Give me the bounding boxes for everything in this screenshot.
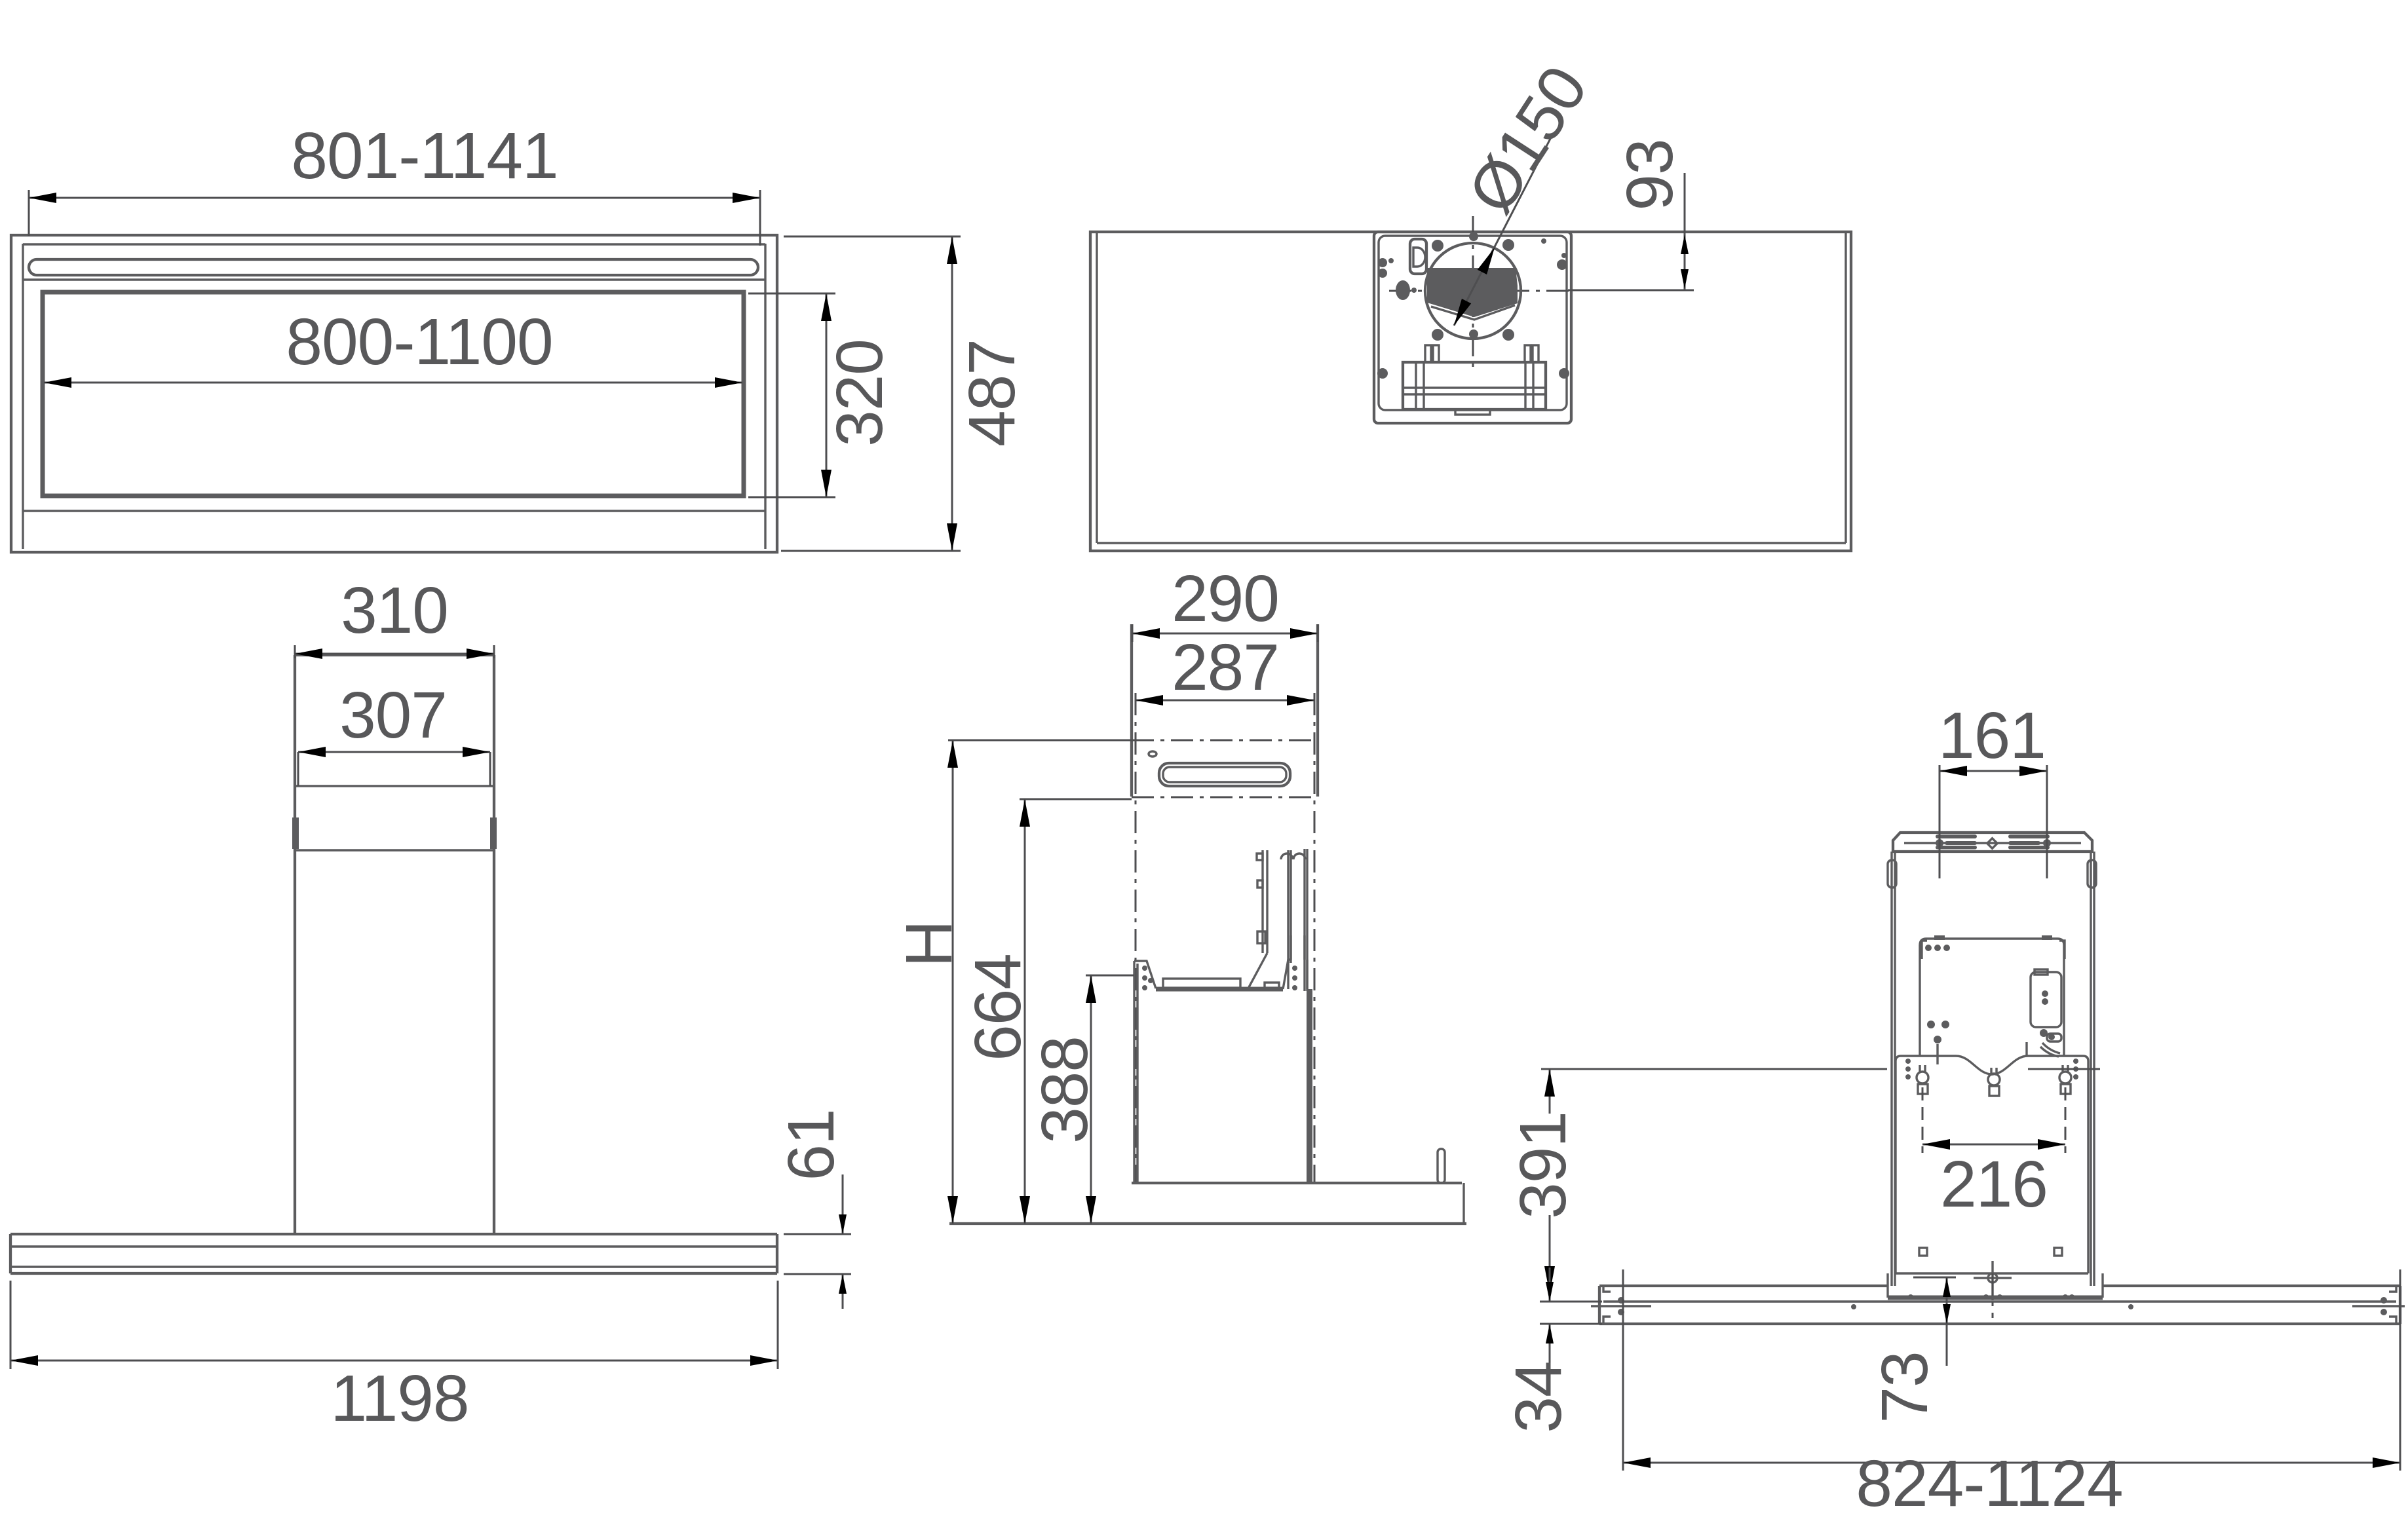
svg-text:800-1100: 800-1100 [286, 305, 552, 379]
svg-text:34: 34 [1502, 1361, 1575, 1433]
svg-text:1198: 1198 [330, 1362, 468, 1435]
svg-text:320: 320 [823, 339, 896, 447]
svg-text:290: 290 [1172, 562, 1279, 635]
svg-text:391: 391 [1506, 1112, 1580, 1219]
svg-text:307: 307 [339, 679, 447, 752]
svg-text:73: 73 [1868, 1351, 1941, 1423]
svg-text:287: 287 [1172, 631, 1279, 704]
svg-text:161: 161 [1938, 699, 2046, 772]
svg-text:93: 93 [1613, 139, 1687, 210]
svg-text:310: 310 [341, 574, 448, 647]
svg-text:664: 664 [961, 954, 1035, 1061]
svg-text:487: 487 [955, 339, 1029, 447]
svg-text:824-1124: 824-1124 [1856, 1447, 2122, 1520]
svg-text:801-1141: 801-1141 [291, 119, 558, 193]
svg-text:H: H [892, 920, 966, 967]
svg-text:388: 388 [1028, 1036, 1101, 1144]
svg-text:61: 61 [774, 1109, 848, 1180]
svg-text:216: 216 [1940, 1148, 2048, 1221]
